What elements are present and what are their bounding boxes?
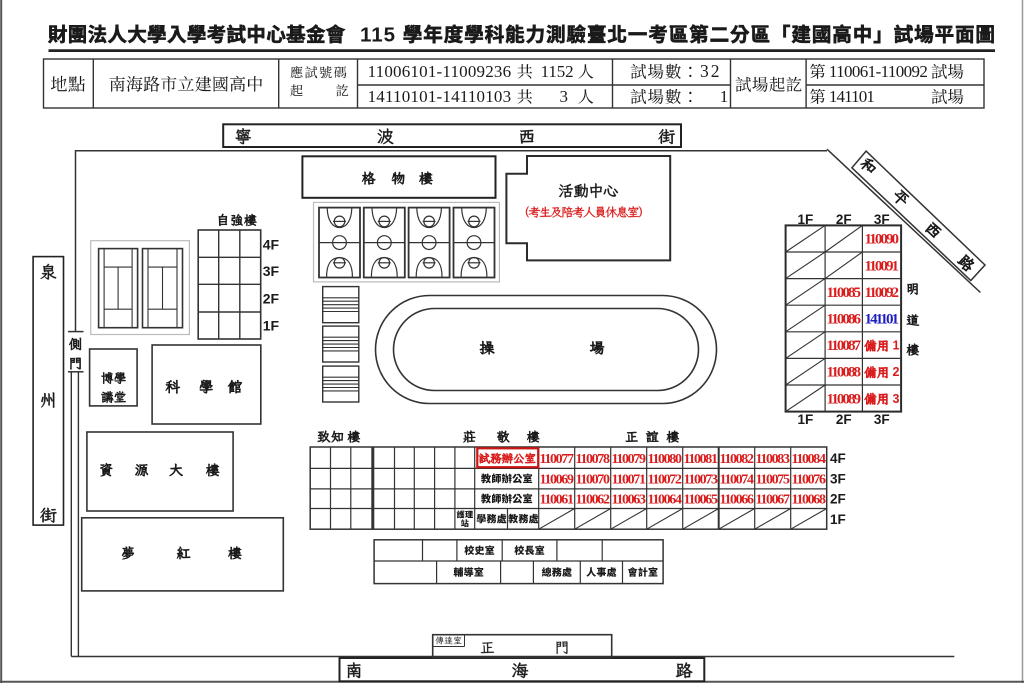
svg-text:110089: 110089 [827,391,862,407]
svg-text:110069: 110069 [539,473,574,488]
svg-text:1: 1 [893,339,900,353]
svg-text:3F: 3F [263,263,280,279]
svg-text:110078: 110078 [575,452,610,467]
svg-text:110080: 110080 [647,452,682,467]
svg-text:110085: 110085 [827,285,862,301]
svg-text:110062: 110062 [575,493,610,508]
svg-text:110092: 110092 [865,285,900,301]
svg-text:110091: 110091 [865,258,900,274]
svg-text:110067: 110067 [755,493,790,508]
svg-text:2: 2 [893,365,900,379]
svg-text:3F: 3F [830,472,846,487]
svg-text:2F: 2F [263,290,280,306]
svg-text:2F: 2F [830,492,846,507]
svg-text:110071: 110071 [611,473,646,488]
svg-text:3F: 3F [874,412,890,427]
svg-text:110083: 110083 [755,452,790,467]
svg-text:3: 3 [893,392,900,406]
svg-text:110068: 110068 [791,493,826,508]
svg-text:1F: 1F [798,412,814,427]
svg-text:110074: 110074 [719,473,754,488]
svg-text:110086: 110086 [827,312,862,328]
svg-text:1: 1 [720,87,729,106]
svg-text:141101: 141101 [865,312,900,328]
svg-text:4F: 4F [263,237,280,253]
svg-text:32: 32 [700,61,722,81]
svg-text:110079: 110079 [611,452,646,467]
svg-text:110081: 110081 [683,452,718,467]
svg-text:1F: 1F [830,512,846,527]
svg-text:141101: 141101 [829,87,875,106]
svg-text:110084: 110084 [791,452,826,467]
svg-text:110061: 110061 [539,493,574,508]
svg-text:2F: 2F [836,412,852,427]
svg-text:110072: 110072 [647,473,682,488]
svg-text:1F: 1F [798,212,814,227]
svg-text:110087: 110087 [827,338,862,354]
svg-text:110063: 110063 [611,493,646,508]
svg-text:110070: 110070 [575,473,610,488]
svg-text:14110101-14110103: 14110101-14110103 [368,87,512,106]
svg-text:110064: 110064 [647,493,682,508]
svg-text:3F: 3F [874,212,890,227]
svg-text:110065: 110065 [683,493,718,508]
svg-text:110090: 110090 [865,232,900,248]
svg-text:110073: 110073 [683,473,718,488]
svg-text:11006101-11009236: 11006101-11009236 [368,62,512,81]
svg-text:4F: 4F [830,451,846,466]
svg-text:110075: 110075 [755,473,790,488]
svg-text:2F: 2F [836,212,852,227]
svg-text:110077: 110077 [539,452,574,467]
svg-text:110082: 110082 [719,452,754,467]
svg-text:1152: 1152 [541,62,574,81]
svg-text:115: 115 [360,23,396,46]
svg-text:1F: 1F [263,318,280,334]
svg-text:3: 3 [559,87,568,106]
svg-text:110088: 110088 [827,365,862,381]
svg-text:110066: 110066 [719,493,754,508]
svg-text:110076: 110076 [791,473,826,488]
svg-text:110061-110092: 110061-110092 [829,62,928,81]
